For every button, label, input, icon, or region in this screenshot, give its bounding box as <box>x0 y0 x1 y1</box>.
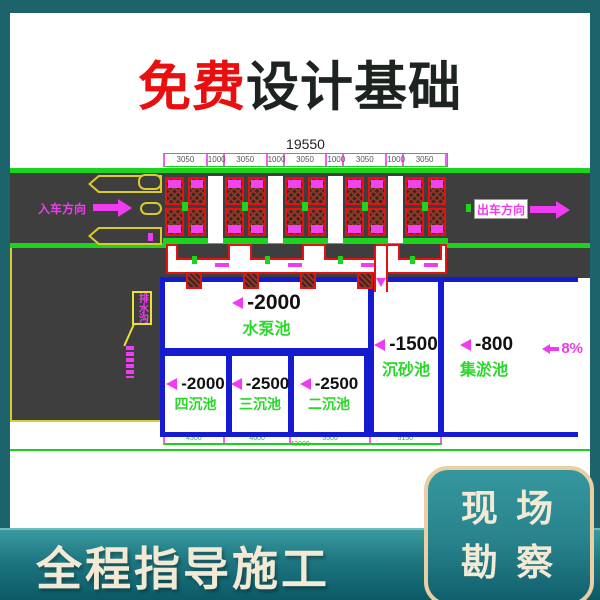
hatch-block <box>308 177 327 205</box>
magenta-cap <box>408 180 421 188</box>
dim-label: 1000 <box>208 154 225 166</box>
green-marker <box>302 202 308 211</box>
hatch-block <box>428 208 447 236</box>
level-marker-icon <box>374 339 385 351</box>
lane-island-fill <box>91 229 160 243</box>
entry-arrow-icon <box>93 204 118 211</box>
channel-notch <box>176 244 230 260</box>
exit-arrow-tip-icon <box>556 201 570 219</box>
dim-label: 1000 <box>327 154 344 166</box>
hatch-grid <box>163 176 448 243</box>
level-marker-icon <box>166 378 177 390</box>
pool-depth: -2500 <box>231 374 289 394</box>
pool-third: -2500 三沉池 <box>232 356 288 432</box>
hatch-block <box>248 208 267 236</box>
green-marker <box>410 256 415 264</box>
hatch-block <box>285 208 304 236</box>
depth-value: -2000 <box>181 374 224 394</box>
pool-name: 二沉池 <box>308 394 350 414</box>
hatch-block <box>308 208 327 236</box>
hatch-block <box>248 177 267 205</box>
channel-stub <box>186 272 202 289</box>
level-marker-icon <box>460 339 471 351</box>
exit-arrow-icon <box>530 206 556 213</box>
channel-stub <box>243 272 259 289</box>
pool-name: 三沉池 <box>239 394 281 414</box>
title-rest: 设计基础 <box>246 58 462 117</box>
magenta-cap <box>348 180 361 188</box>
pool-pump: -2000 水泵池 <box>165 282 368 348</box>
magenta-cap <box>311 225 324 233</box>
channel-notch <box>250 244 304 260</box>
exit-direction-box: 出车方向 <box>474 199 528 219</box>
magenta-cap <box>251 225 264 233</box>
pool-depth: -2500 <box>300 374 358 394</box>
title-highlight: 免费 <box>138 58 246 117</box>
magenta-cap <box>168 225 181 233</box>
hatch-block <box>368 177 387 205</box>
green-marker <box>466 204 471 212</box>
hatch-block <box>405 177 424 205</box>
channel-stub <box>300 272 316 289</box>
pool-second: -2500 二沉池 <box>294 356 364 432</box>
magenta-cap <box>228 180 241 188</box>
magenta-cap <box>168 180 181 188</box>
magenta-cap <box>191 225 204 233</box>
parking-bay-group <box>343 176 388 243</box>
dim-label: 1000 <box>268 154 285 166</box>
level-marker-icon <box>231 378 242 390</box>
dim-label: 3050 <box>285 154 328 166</box>
depth-value: -2500 <box>315 374 358 394</box>
lane-gap <box>328 176 343 243</box>
promo-image: 免费设计基础 19550 305010003050100030501000305… <box>0 0 600 600</box>
footer-slogan: 全程指导施工 <box>36 533 330 599</box>
magenta-cap <box>371 180 384 188</box>
dim-label: 3050 <box>165 154 208 166</box>
slope-value: 8% <box>561 340 583 357</box>
pool-depth: -2000 <box>232 291 301 315</box>
top-dim-chain: 305010003050100030501000305010003050 <box>163 153 448 167</box>
flow-arrow-icon <box>288 263 302 267</box>
dim-label: 3050 <box>344 154 387 166</box>
ramp-apron <box>10 248 160 422</box>
hatch-block <box>225 208 244 236</box>
hatch-block <box>188 177 207 205</box>
hatch-block <box>345 208 364 236</box>
parking-bay-group <box>223 176 268 243</box>
green-marker <box>265 256 270 264</box>
green-marker <box>242 202 248 211</box>
green-marker <box>362 202 368 211</box>
dim-label: 3050 <box>404 154 447 166</box>
dim-label: 3050 <box>225 154 268 166</box>
depth-value: -1500 <box>389 334 438 356</box>
down-arrow-icon <box>376 278 386 287</box>
hatch-block <box>165 177 184 205</box>
pool-depth: -2000 <box>166 374 224 394</box>
green-marker <box>192 256 197 264</box>
depth-value: -2500 <box>246 374 289 394</box>
flow-arrow-icon <box>215 263 229 267</box>
pool-name: 水泵池 <box>242 315 290 339</box>
pool-depth: -800 <box>460 334 513 356</box>
entry-direction-label: 入车方向 <box>38 200 86 217</box>
lane-gap <box>268 176 283 243</box>
magenta-cap <box>311 180 324 188</box>
magenta-cap <box>371 225 384 233</box>
pool-name: 沉砂池 <box>382 356 430 380</box>
slope-label: 8% <box>542 340 583 357</box>
left-arrow-icon <box>550 347 559 351</box>
flow-arrow-icon <box>424 263 438 267</box>
hatch-block <box>345 177 364 205</box>
hatch-block <box>285 177 304 205</box>
pool-name: 四沉池 <box>175 394 217 414</box>
lane-gap <box>388 176 403 243</box>
channel-stub <box>357 272 373 289</box>
magenta-cap <box>408 225 421 233</box>
pool-sand: -1500 沉砂池 <box>374 282 438 432</box>
parking-bay-group <box>283 176 328 243</box>
depth-value: -800 <box>475 334 513 356</box>
pool-fourth: -2000 四沉池 <box>165 356 226 432</box>
magenta-cap <box>431 180 444 188</box>
pool-depth: -1500 <box>374 334 438 356</box>
level-marker-icon <box>232 297 243 309</box>
hatch-block <box>368 208 387 236</box>
magenta-cap <box>288 180 301 188</box>
channel-notch <box>398 244 442 260</box>
badge-line: 现 场 <box>461 482 557 536</box>
parking-bay-group <box>403 176 448 243</box>
magenta-cap <box>431 225 444 233</box>
exit-direction-label: 出车方向 <box>477 201 525 218</box>
green-marker <box>338 256 343 264</box>
magenta-cap <box>348 225 361 233</box>
green-marker <box>422 202 428 211</box>
green-marker <box>182 202 188 211</box>
small-annotation <box>126 346 134 378</box>
dim-label: 1000 <box>387 154 404 166</box>
hatch-block <box>225 177 244 205</box>
island-tip <box>138 174 162 190</box>
hatch-block <box>428 177 447 205</box>
flow-arrow-icon <box>361 263 375 267</box>
pool-inlet <box>374 246 388 292</box>
page-title: 免费设计基础 <box>0 56 600 120</box>
top-total-dimension: 19550 <box>163 136 448 152</box>
bottom-total-dimension: 43000 <box>270 441 330 448</box>
hatch-block <box>188 208 207 236</box>
island-tip <box>140 202 162 215</box>
depth-value: -2000 <box>247 291 301 315</box>
left-arrow-icon <box>542 344 550 354</box>
parking-bay-group <box>163 176 208 243</box>
hatch-block <box>405 208 424 236</box>
pool-sludge: -800 集淤池 8% <box>444 282 589 432</box>
hatch-block <box>165 208 184 236</box>
channel-notch <box>324 244 378 260</box>
lane-island-bottom <box>88 227 162 245</box>
drain-leader-label: 排水沟 <box>132 291 152 325</box>
pools-block: -2000 水泵池 -2000 四沉池 -2500 三沉池 -2500 二沉池 … <box>160 277 578 437</box>
badge-line: 勘 察 <box>461 536 557 590</box>
magenta-mark <box>148 233 153 241</box>
entry-arrow-tip-icon <box>118 199 132 217</box>
lane-gap <box>208 176 223 243</box>
magenta-cap <box>251 180 264 188</box>
magenta-cap <box>228 225 241 233</box>
magenta-cap <box>288 225 301 233</box>
pool-name: 集淤池 <box>460 356 508 380</box>
site-survey-badge: 现 场 勘 察 <box>424 466 594 600</box>
magenta-cap <box>191 180 204 188</box>
bottom-total-line <box>10 449 590 451</box>
level-marker-icon <box>300 378 311 390</box>
